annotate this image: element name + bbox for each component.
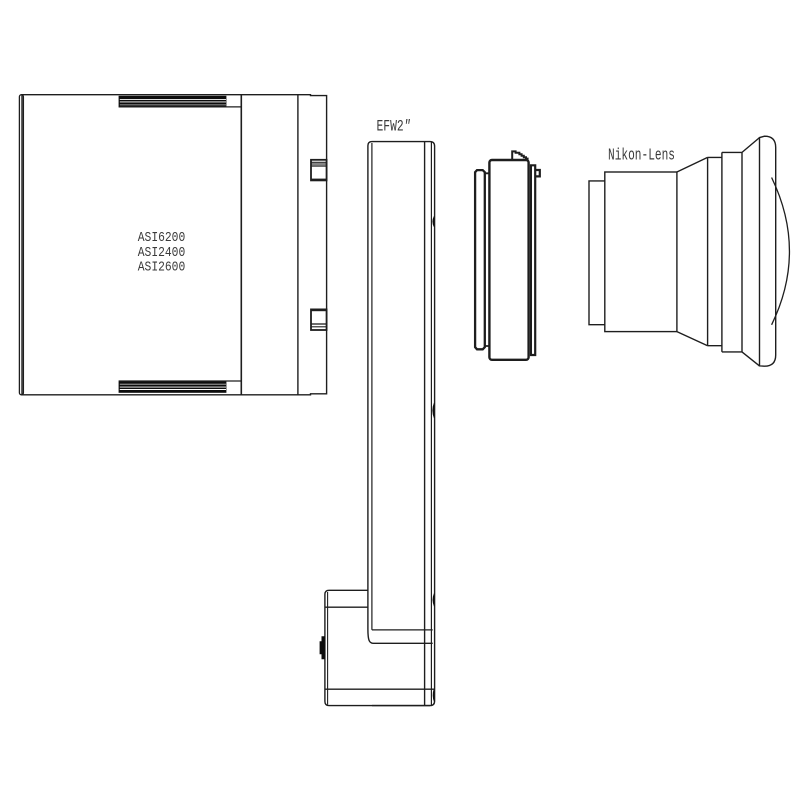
svg-text:EFW2″: EFW2″: [377, 117, 411, 135]
svg-text:ASI6200: ASI6200: [138, 230, 186, 246]
svg-text:ASI2400: ASI2400: [138, 245, 186, 261]
svg-text:ASI2600: ASI2600: [138, 259, 186, 275]
svg-text:Nikon-Lens: Nikon-Lens: [608, 145, 675, 164]
